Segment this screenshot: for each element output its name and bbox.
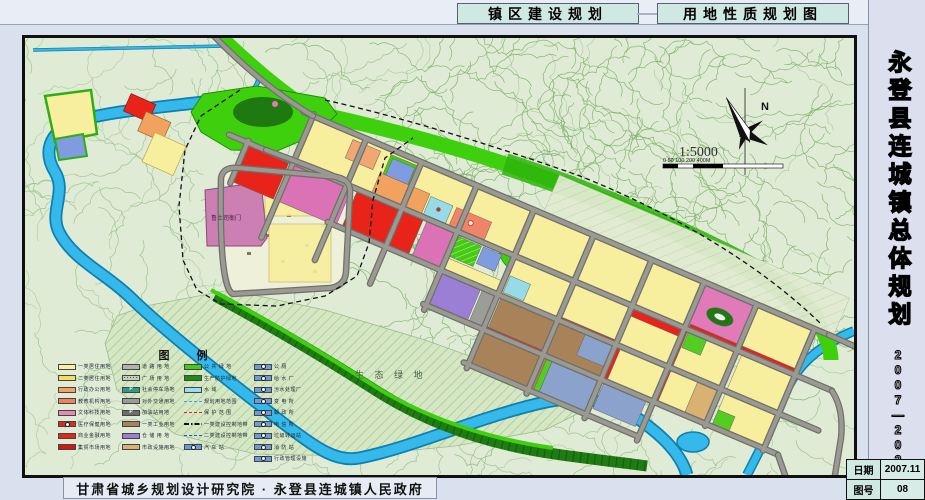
legend-swatch-icon [254,364,272,370]
map-canvas: 1:5000 N 0 50 100 200 400M 鲁土司衙门 生 态 绿 地… [22,35,857,478]
legend-swatch-icon [122,398,140,404]
legend-label: 公 厕 [274,363,287,370]
date-label: 日期 [847,460,881,480]
legend-column: 道 路 用 地广 场 用 地P社会停车场地对外交通用地P加油站用地一类工业用地仓… [122,361,184,465]
legend-label: 广 场 用 地 [142,375,170,382]
legend-swatch-icon [58,410,76,416]
legend-swatch-icon [254,410,272,416]
legend-label: 商业金融用地 [78,432,111,439]
legend-swatch-icon [122,364,140,370]
legend-label: 医疗保健用地 [78,421,111,428]
legend-swatch-icon [184,423,202,425]
legend-swatch-icon [184,401,202,402]
legend-label: 二类居住用地 [78,375,111,382]
legend-swatch-icon [184,364,202,370]
legend-swatch-icon [122,433,140,439]
legend-item: 规划用地范围 [184,396,254,408]
legend-swatch-icon [58,387,76,393]
legend-column: 一类居住用地二类居住用地行政办公用地教育机构用地文体科技用地医疗保健用地商业金融… [58,361,122,465]
title-connector [637,13,657,15]
sheet-title-left: 镇区建设规划 [457,3,639,24]
legend-item: 对外交通用地 [122,396,184,408]
legend-swatch-icon [254,398,272,404]
legend-swatch-icon [184,375,202,381]
legend-item: 一类居住用地 [58,361,122,373]
legend-item: 行政管理设施 [254,453,318,465]
legend-label: 社会停车场地 [142,386,175,393]
legend-item: P社会停车场地 [122,384,184,396]
legend-item: 市政设施用地 [122,442,184,454]
legend-title: 图 例 [58,347,320,361]
legend-swatch-icon [184,444,202,450]
legend-swatch-icon [254,444,272,450]
legend-label: 水 域 [204,386,217,393]
legend-item: 生产防护绿地 [184,373,254,385]
legend-label: 公 共 绿 地 [204,363,232,370]
legend-swatch-icon [254,433,272,439]
sheet-label: 图号 [847,480,881,500]
svg-text:0 50 100 200: 0 50 100 200 400M [663,158,711,164]
plan-title-vertical: 永登县连城镇总体规划 [869,50,925,330]
legend-item: 商业金融用地 [58,430,122,442]
info-table: 日期 2007.11 图号 08 [846,459,925,500]
credit-box: 甘肃省城乡规划设计研究院 · 永登县连城镇人民政府 [63,477,437,499]
legend-label: 集贸市场用地 [78,444,111,451]
sheet-title-right: 用地性质规划图 [657,3,849,24]
legend-label: 一类居住用地 [78,363,111,370]
legend-item: 教育机构用地 [58,396,122,408]
legend-swatch-icon [58,433,76,439]
top-strip: 镇区建设规划 用地性质规划图 [0,0,868,25]
legend-item: 道 路 用 地 [122,361,184,373]
legend-label: 汽 车 站 [204,444,224,451]
legend-swatch-icon [184,387,202,393]
legend-swatch-icon [58,421,76,427]
legend-swatch-icon [58,444,76,450]
legend-label: 给 水 厂 [274,375,294,382]
legend-label: 加油站用地 [142,409,170,416]
legend-column: 公 厕给 水 厂污水处理厂变 电 所邮 政 所电 信 所垃圾转运站消 防 站行政… [254,361,318,465]
legend-label: 垃圾转运站 [274,432,302,439]
legend-label: 仓 储 用 地 [142,432,170,439]
legend-item: 垃圾转运站 [254,430,318,442]
legend-label: 行政管理设施 [274,455,307,462]
legend-item: 公 共 绿 地 [184,361,254,373]
legend-item: 二类建设控制地带 [184,430,254,442]
legend: 图 例 一类居住用地二类居住用地行政办公用地教育机构用地文体科技用地医疗保健用地… [58,347,320,469]
legend-item: 集贸市场用地 [58,442,122,454]
legend-swatch-icon [122,375,140,381]
sheet-value: 08 [881,480,925,500]
legend-label: 变 电 所 [274,398,294,405]
eco-label: 生 态 绿 地 [355,369,427,380]
legend-label: 市政设施用地 [142,444,175,451]
legend-label: 生产防护绿地 [204,375,237,382]
legend-label: 道 路 用 地 [142,363,170,370]
planning-map-sheet: 镇区建设规划 用地性质规划图 [0,0,925,500]
legend-label: 教育机构用地 [78,398,111,405]
legend-swatch-icon [254,456,272,462]
legend-swatch-icon [254,387,272,393]
legend-label: 文体科技用地 [78,409,111,416]
north-label: N [761,101,769,113]
legend-item: 给 水 厂 [254,373,318,385]
legend-label: 电 信 所 [274,421,294,428]
legend-item: 邮 政 所 [254,407,318,419]
legend-label: 保 护 范 围 [204,409,232,416]
legend-label: 规划用地范围 [204,398,237,405]
legend-item: 保 护 范 围 [184,407,254,419]
legend-item: 仓 储 用 地 [122,430,184,442]
legend-item: 消 防 站 [254,442,318,454]
legend-item: 一类建设控制地带 [184,419,254,431]
legend-swatch-icon: P [122,387,140,393]
legend-label: 邮 政 所 [274,409,294,416]
legend-item: 水 域 [184,384,254,396]
legend-label: 行政办公用地 [78,386,111,393]
legend-label: 二类建设控制地带 [204,432,248,439]
legend-label: 消 防 站 [274,444,294,451]
legend-item: 公 厕 [254,361,318,373]
legend-item: 广 场 用 地 [122,373,184,385]
legend-item: 汽 车 站 [184,442,254,454]
legend-swatch-icon: P [122,410,140,416]
legend-item: 电 信 所 [254,419,318,431]
lutusi-label: 鲁土司衙门 [211,214,241,222]
legend-label: 污水处理厂 [274,386,302,393]
legend-item: 行政办公用地 [58,384,122,396]
legend-item: 一类工业用地 [122,419,184,431]
sidebar: 永登县连城镇总体规划 2007—2020 [868,0,925,500]
legend-swatch-icon [184,412,202,413]
legend-swatch-icon [58,364,76,370]
legend-swatch-icon [254,421,272,427]
legend-label: 一类建设控制地带 [204,421,248,428]
legend-item: 医疗保健用地 [58,419,122,431]
legend-label: 一类工业用地 [142,421,175,428]
legend-swatch-icon [58,375,76,381]
legend-swatch-icon [254,375,272,381]
legend-item: 文体科技用地 [58,407,122,419]
legend-item: 污水处理厂 [254,384,318,396]
legend-label: 对外交通用地 [142,398,175,405]
legend-item: P加油站用地 [122,407,184,419]
legend-item: 变 电 所 [254,396,318,408]
date-value: 2007.11 [881,460,925,480]
legend-column: 公 共 绿 地生产防护绿地水 域规划用地范围保 护 范 围一类建设控制地带二类建… [184,361,254,465]
legend-swatch-icon [184,435,202,436]
legend-swatch-icon [122,444,140,450]
legend-swatch-icon [58,398,76,404]
legend-swatch-icon [122,421,140,427]
legend-item: 二类居住用地 [58,373,122,385]
